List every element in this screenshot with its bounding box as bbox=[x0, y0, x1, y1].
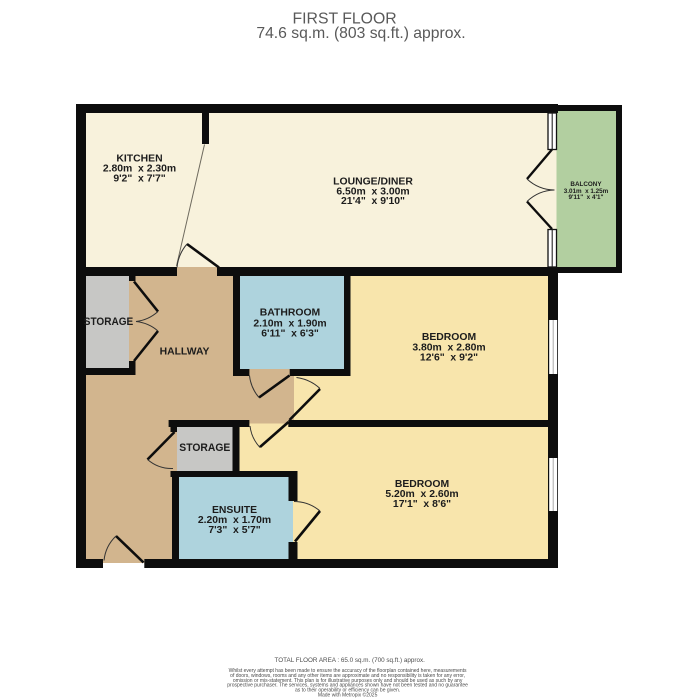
svg-text:TOTAL FLOOR AREA : 65.0 sq.m.: TOTAL FLOOR AREA : 65.0 sq.m. (700 sq.ft… bbox=[275, 657, 426, 664]
svg-text:BEDROOM: BEDROOM bbox=[422, 332, 476, 343]
svg-text:BATHROOM: BATHROOM bbox=[260, 308, 320, 319]
svg-text:74.6 sq.m. (803 sq.ft.) approx: 74.6 sq.m. (803 sq.ft.) approx. bbox=[256, 25, 465, 42]
svg-text:6'11" x 6'3": 6'11" x 6'3" bbox=[261, 328, 319, 339]
svg-text:9'2" x 7'7": 9'2" x 7'7" bbox=[113, 174, 165, 185]
svg-text:HALLWAY: HALLWAY bbox=[160, 347, 210, 358]
svg-text:21'4" x 9'10": 21'4" x 9'10" bbox=[341, 196, 405, 207]
svg-text:STORAGE: STORAGE bbox=[84, 316, 134, 328]
svg-text:7'3" x 5'7": 7'3" x 5'7" bbox=[208, 525, 260, 536]
svg-text:Made with Metropix ©2025: Made with Metropix ©2025 bbox=[318, 691, 378, 698]
svg-text:12'6" x 9'2": 12'6" x 9'2" bbox=[420, 353, 478, 364]
svg-text:STORAGE: STORAGE bbox=[179, 442, 230, 454]
svg-text:9'11" x 4'1": 9'11" x 4'1" bbox=[569, 194, 604, 201]
svg-text:17'1" x 8'6": 17'1" x 8'6" bbox=[393, 499, 451, 510]
